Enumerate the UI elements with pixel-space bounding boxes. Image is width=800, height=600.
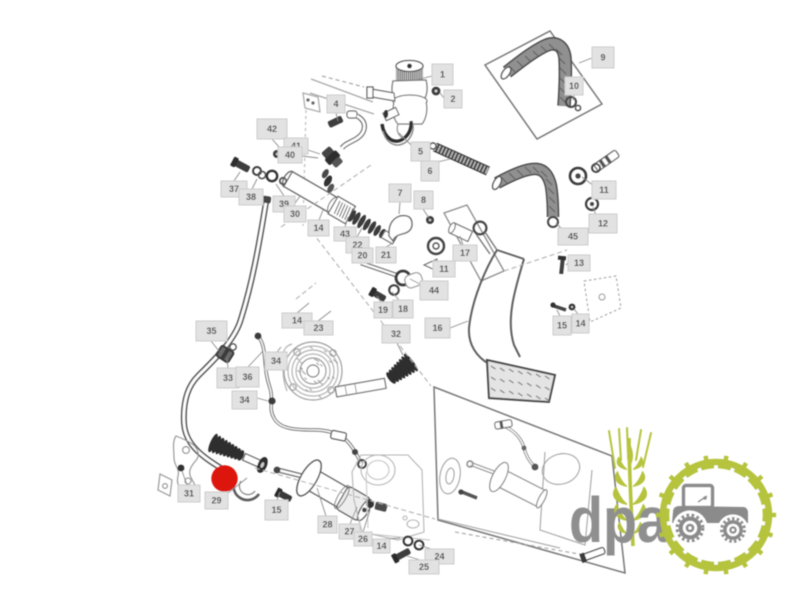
svg-text:16: 16 bbox=[432, 323, 442, 333]
svg-text:17: 17 bbox=[460, 248, 470, 258]
svg-text:1: 1 bbox=[440, 70, 445, 80]
svg-text:6: 6 bbox=[427, 166, 432, 176]
svg-text:2: 2 bbox=[450, 94, 455, 104]
svg-text:31: 31 bbox=[184, 489, 194, 499]
svg-text:dpa: dpa bbox=[569, 484, 668, 556]
svg-text:11: 11 bbox=[439, 264, 449, 274]
svg-text:14: 14 bbox=[313, 223, 323, 233]
svg-text:21: 21 bbox=[381, 250, 391, 260]
svg-text:42: 42 bbox=[267, 124, 277, 134]
svg-text:25: 25 bbox=[419, 562, 429, 572]
svg-text:14: 14 bbox=[376, 541, 386, 551]
svg-text:40: 40 bbox=[285, 150, 295, 160]
svg-text:32: 32 bbox=[391, 329, 401, 339]
svg-text:10: 10 bbox=[569, 81, 579, 91]
svg-text:8: 8 bbox=[421, 195, 426, 205]
svg-text:44: 44 bbox=[429, 286, 439, 296]
svg-text:4: 4 bbox=[333, 99, 338, 109]
svg-text:33: 33 bbox=[223, 373, 233, 383]
svg-text:27: 27 bbox=[344, 527, 354, 537]
svg-text:30: 30 bbox=[290, 209, 300, 219]
svg-text:14: 14 bbox=[575, 319, 585, 329]
svg-text:11: 11 bbox=[599, 185, 609, 195]
svg-text:38: 38 bbox=[246, 192, 256, 202]
svg-text:7: 7 bbox=[397, 188, 402, 198]
svg-text:5: 5 bbox=[418, 147, 423, 157]
svg-text:37: 37 bbox=[229, 184, 239, 194]
svg-text:23: 23 bbox=[313, 323, 323, 333]
svg-text:19: 19 bbox=[378, 305, 388, 315]
svg-text:18: 18 bbox=[398, 304, 408, 314]
svg-text:34: 34 bbox=[239, 395, 249, 405]
svg-text:34: 34 bbox=[271, 356, 281, 366]
svg-text:26: 26 bbox=[358, 534, 368, 544]
svg-text:29: 29 bbox=[211, 496, 221, 506]
svg-text:35: 35 bbox=[206, 326, 216, 336]
svg-text:20: 20 bbox=[357, 251, 367, 261]
svg-text:28: 28 bbox=[322, 520, 332, 530]
svg-text:15: 15 bbox=[557, 321, 567, 331]
svg-text:12: 12 bbox=[598, 219, 608, 229]
svg-text:14: 14 bbox=[292, 316, 302, 326]
svg-text:45: 45 bbox=[568, 232, 578, 242]
svg-text:9: 9 bbox=[600, 53, 605, 63]
svg-text:15: 15 bbox=[271, 505, 281, 515]
svg-text:13: 13 bbox=[574, 258, 584, 268]
svg-text:36: 36 bbox=[242, 372, 252, 382]
